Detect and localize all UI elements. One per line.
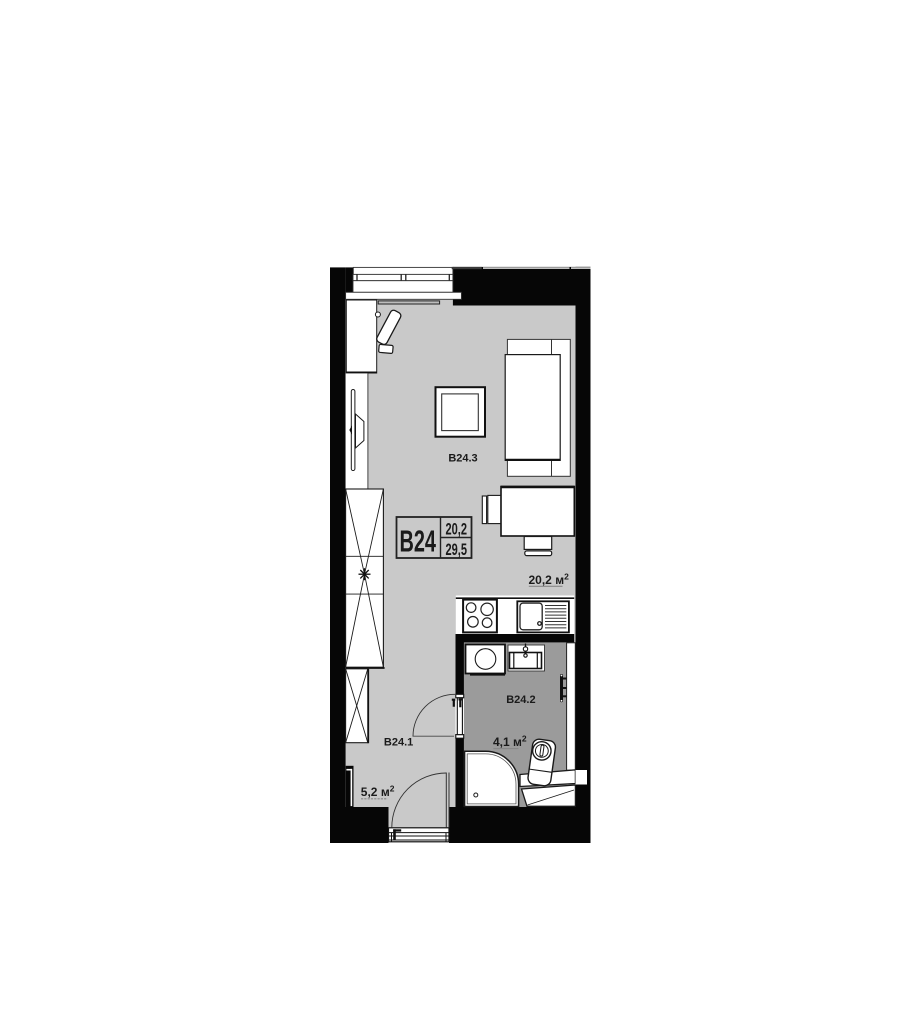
svg-text:29,5: 29,5 (446, 541, 468, 559)
svg-text:B24.1: B24.1 (384, 736, 413, 748)
svg-text:B24: B24 (400, 524, 437, 559)
svg-text:20,2: 20,2 (446, 520, 468, 538)
svg-text:20,2 м2: 20,2 м2 (529, 571, 570, 587)
svg-text:B24.3: B24.3 (448, 453, 477, 465)
svg-text:5,2 м2: 5,2 м2 (361, 783, 395, 799)
svg-text:B24.2: B24.2 (506, 694, 535, 706)
svg-text:4,1 м2: 4,1 м2 (493, 734, 527, 750)
